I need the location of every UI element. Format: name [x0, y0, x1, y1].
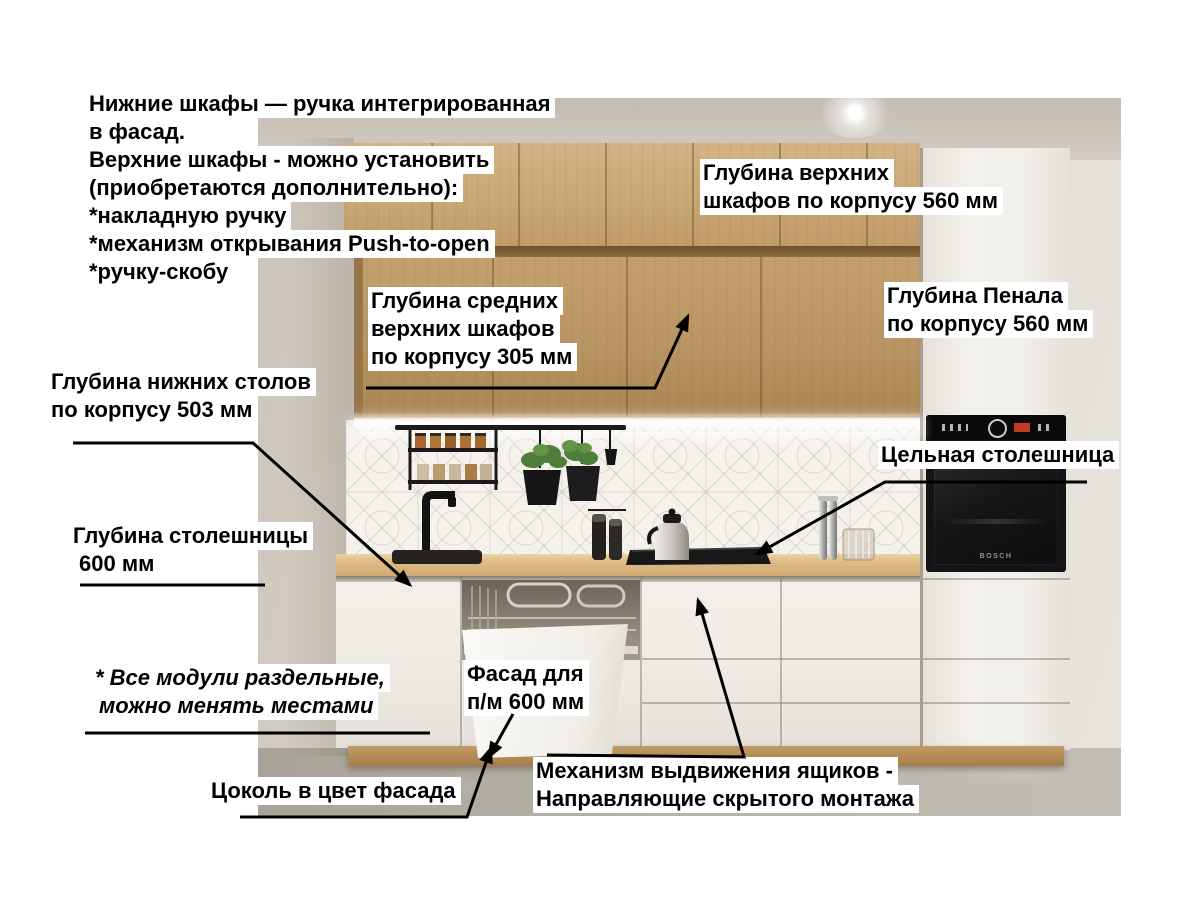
annotation-modules-note: * Все модули раздельные, можно менять ме…	[92, 664, 390, 720]
annotation-text-line: по корпусу 560 мм	[884, 310, 1093, 338]
cooktop	[626, 547, 771, 565]
annotation-text-line: 600 мм	[76, 550, 159, 578]
annotation-text-line: п/м 600 мм	[464, 688, 589, 716]
annotation-text-line: Цоколь в цвет фасада	[208, 777, 461, 805]
annotation-text-line: Глубина Пенала	[884, 282, 1068, 310]
annotation-text-line: Направляющие скрытого монтажа	[533, 785, 919, 813]
annotation-text-line: шкафов по корпусу 560 мм	[700, 187, 1003, 215]
pepper-grinders	[588, 510, 626, 560]
annotation-upper-cabinet-depth: Глубина верхних шкафов по корпусу 560 мм	[700, 159, 1003, 215]
faucet	[416, 491, 456, 557]
chrome-canister	[818, 496, 838, 560]
hanging-plants	[521, 429, 616, 505]
annotation-text-line: Цельная столешница	[878, 441, 1119, 469]
annotation-text-line: Глубина средних	[368, 287, 563, 315]
annotation-mid-upper-cabinet-depth: Глубина средних верхних шкафов по корпус…	[368, 287, 577, 371]
annotation-text-line: Нижние шкафы — ручка интегрированная	[86, 90, 555, 118]
annotation-text-line: *накладную ручку	[86, 202, 291, 230]
annotation-text-line: в фасад.	[86, 118, 190, 146]
annotation-dishwasher-front: Фасад для п/м 600 мм	[464, 660, 589, 716]
annotation-countertop-depth: Глубина столешницы 600 мм	[70, 522, 313, 578]
annotation-text-line: *ручку-скобу	[86, 258, 233, 286]
annotation-text-line: можно менять местами	[96, 692, 378, 720]
annotation-handles-note: Нижние шкафы — ручка интегрированная в ф…	[86, 90, 555, 286]
annotation-text-line: *механизм открывания Push-to-open	[86, 230, 495, 258]
annotation-text-line: Глубина столешницы	[70, 522, 313, 550]
annotation-text-line: (приобретаются дополнительно):	[86, 174, 463, 202]
annotation-solid-countertop: Цельная столешница	[878, 441, 1119, 469]
annotation-base-cabinet-depth: Глубина нижних столов по корпусу 503 мм	[48, 368, 316, 424]
annotation-text-line: Глубина нижних столов	[48, 368, 316, 396]
annotation-text-line: Глубина верхних	[700, 159, 894, 187]
annotation-text-line: верхних шкафов	[368, 315, 560, 343]
kettle	[649, 509, 689, 561]
annotation-drawer-mechanism: Механизм выдвижения ящиков - Направляющи…	[533, 757, 919, 813]
spice-shelf	[408, 429, 498, 490]
annotation-tall-unit-depth: Глубина Пенала по корпусу 560 мм	[884, 282, 1093, 338]
spice-jars	[415, 433, 492, 480]
utensil-rail	[395, 425, 626, 430]
annotation-text-line: по корпусу 305 мм	[368, 343, 577, 371]
annotation-text-line: по корпусу 503 мм	[48, 396, 257, 424]
annotation-text-line: * Все модули раздельные,	[92, 664, 390, 692]
annotated-kitchen-diagram: BOSCH	[0, 0, 1201, 900]
annotation-text-line: Верхние шкафы - можно установить	[86, 146, 494, 174]
glass-cup	[843, 529, 874, 560]
sink	[392, 550, 482, 564]
annotation-text-line: Фасад для	[464, 660, 589, 688]
annotation-plinth-note: Цоколь в цвет фасада	[208, 777, 461, 805]
annotation-text-line: Механизм выдвижения ящиков -	[533, 757, 898, 785]
